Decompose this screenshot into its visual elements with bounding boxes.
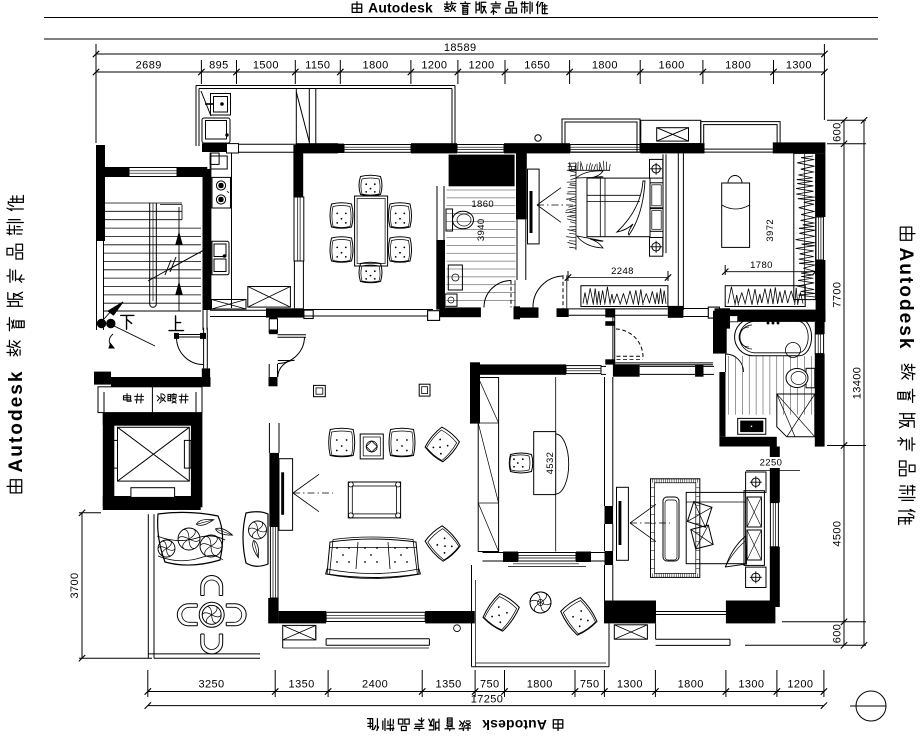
svg-text:1800: 1800: [527, 679, 553, 691]
svg-text:3250: 3250: [198, 679, 224, 691]
svg-text:1800: 1800: [592, 60, 618, 72]
svg-text:1500: 1500: [253, 60, 279, 72]
svg-text:1350: 1350: [436, 679, 462, 691]
svg-text:Autodesk: Autodesk: [6, 370, 27, 473]
svg-text:1780: 1780: [750, 260, 773, 271]
svg-text:1350: 1350: [289, 679, 315, 691]
svg-text:750: 750: [480, 679, 500, 691]
svg-text:Autodesk: Autodesk: [482, 717, 547, 733]
svg-text:1300: 1300: [617, 679, 643, 691]
svg-text:Autodesk: Autodesk: [368, 0, 433, 15]
svg-text:13400: 13400: [852, 367, 864, 400]
svg-text:7700: 7700: [832, 282, 844, 308]
svg-text:750: 750: [580, 679, 600, 691]
svg-text:600: 600: [832, 122, 844, 142]
svg-text:1800: 1800: [678, 679, 704, 691]
svg-text:1300: 1300: [738, 679, 764, 691]
svg-text:3700: 3700: [69, 572, 81, 598]
svg-text:2248: 2248: [611, 266, 634, 277]
svg-text:1300: 1300: [786, 60, 812, 72]
svg-text:895: 895: [209, 60, 229, 72]
svg-text:2400: 2400: [362, 679, 388, 691]
svg-text:3972: 3972: [765, 219, 776, 242]
svg-text:1860: 1860: [471, 199, 494, 210]
svg-text:4532: 4532: [545, 452, 556, 475]
svg-text:3940: 3940: [476, 218, 487, 241]
svg-text:17250: 17250: [471, 694, 504, 706]
svg-text:1600: 1600: [659, 60, 685, 72]
svg-text:4500: 4500: [832, 521, 844, 547]
svg-text:1200: 1200: [468, 60, 494, 72]
svg-text:1650: 1650: [524, 60, 550, 72]
svg-text:600: 600: [832, 624, 844, 644]
svg-text:Autodesk: Autodesk: [895, 248, 916, 351]
svg-text:1800: 1800: [725, 60, 751, 72]
svg-text:1800: 1800: [363, 60, 389, 72]
svg-text:18589: 18589: [444, 42, 477, 54]
svg-text:2689: 2689: [136, 60, 162, 72]
svg-text:1150: 1150: [305, 60, 330, 72]
svg-text:1200: 1200: [787, 679, 813, 691]
svg-text:2250: 2250: [760, 458, 783, 469]
svg-text:1200: 1200: [421, 60, 447, 72]
